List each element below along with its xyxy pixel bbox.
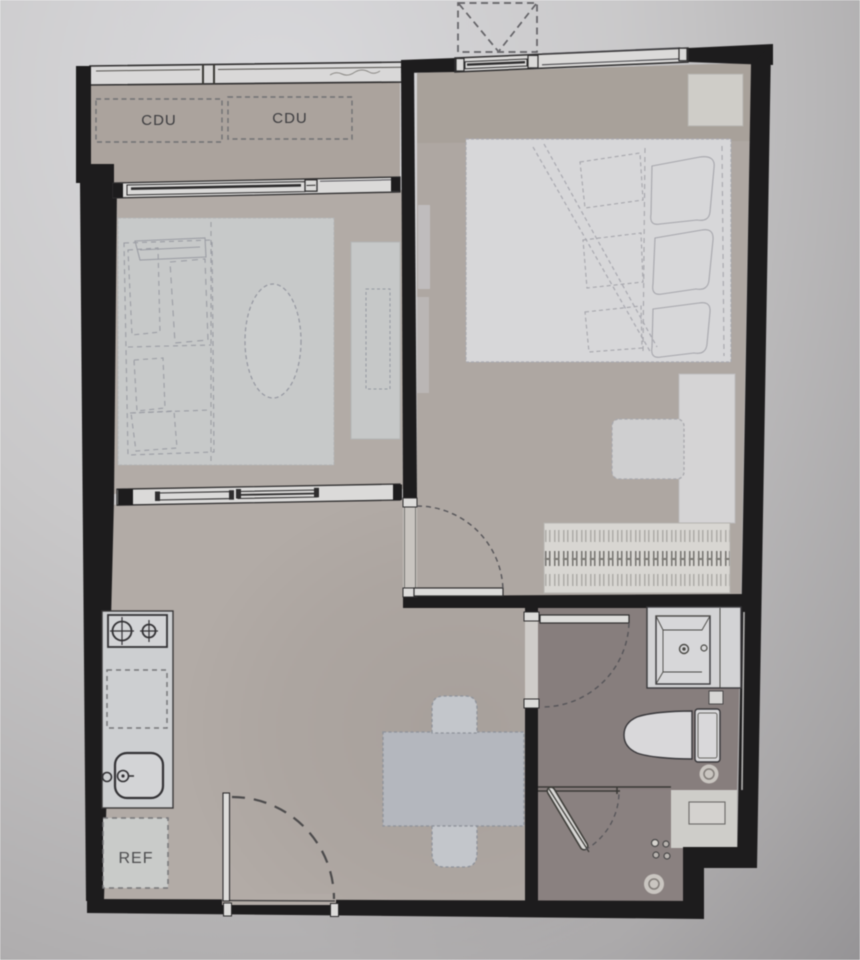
svg-text:REF: REF <box>119 850 154 867</box>
svg-text:CDU: CDU <box>141 112 177 129</box>
svg-text:CDU: CDU <box>272 110 308 127</box>
